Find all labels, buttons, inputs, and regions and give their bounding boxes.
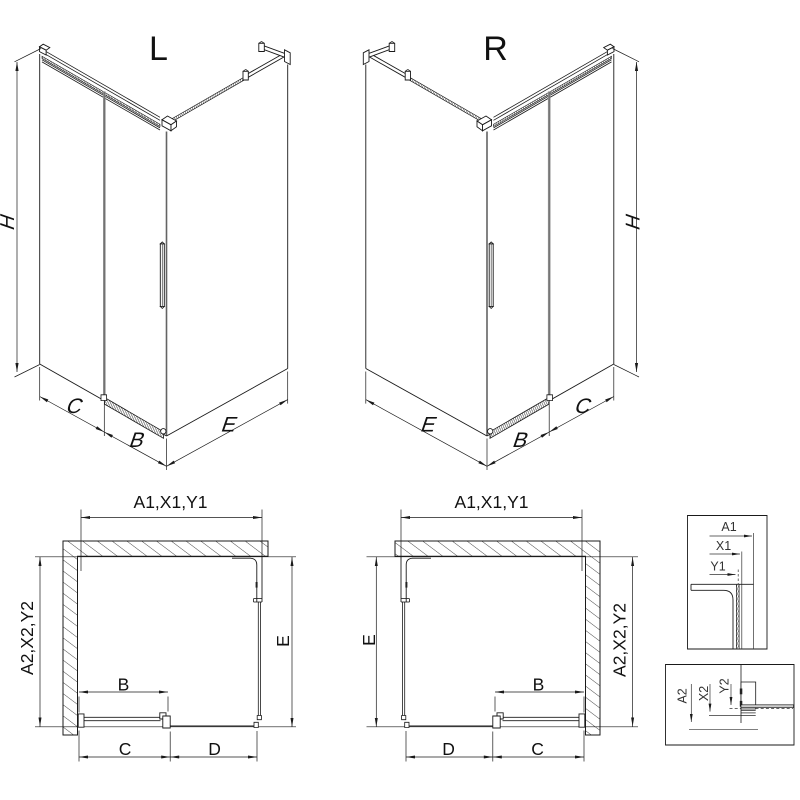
svg-text:A1,X1,Y1: A1,X1,Y1 — [134, 492, 208, 512]
svg-text:E: E — [359, 634, 379, 646]
svg-text:C: C — [531, 739, 544, 759]
svg-text:C: C — [119, 739, 132, 759]
svg-text:A2,X2,Y2: A2,X2,Y2 — [17, 601, 37, 675]
svg-text:A1: A1 — [721, 520, 736, 534]
svg-text:A1,X1,Y1: A1,X1,Y1 — [455, 492, 529, 512]
svg-text:X2: X2 — [697, 686, 711, 701]
svg-text:D: D — [208, 739, 221, 759]
svg-text:Y2: Y2 — [717, 678, 731, 693]
svg-text:B: B — [118, 675, 130, 695]
svg-text:E: E — [273, 635, 293, 647]
svg-text:A2,X2,Y2: A2,X2,Y2 — [609, 603, 629, 677]
svg-text:D: D — [442, 739, 455, 759]
svg-text:A2: A2 — [676, 688, 690, 703]
svg-text:L: L — [149, 30, 168, 68]
svg-text:R: R — [483, 30, 508, 68]
svg-text:Y1: Y1 — [710, 560, 725, 574]
svg-text:X1: X1 — [716, 539, 731, 553]
svg-text:B: B — [533, 675, 545, 695]
